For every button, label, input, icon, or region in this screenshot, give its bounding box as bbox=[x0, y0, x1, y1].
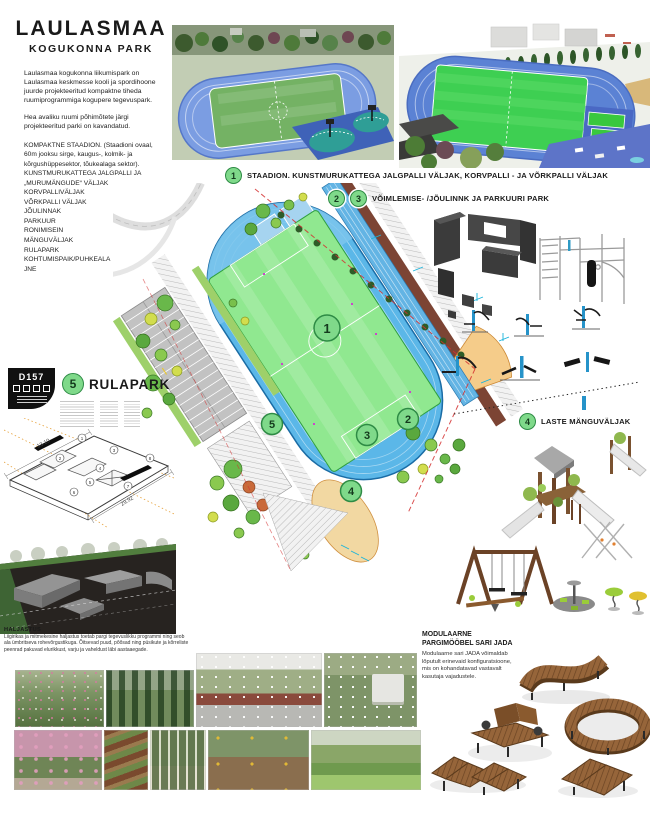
legend-item-2-3: 2 3 VÕIMLEMISE- /JÕULINNK JA PARKUURI PA… bbox=[328, 190, 549, 207]
photo-blossom-path bbox=[14, 730, 102, 790]
photo-terraced-planters bbox=[104, 730, 148, 790]
plan-marker-2-number: 2 bbox=[405, 414, 411, 426]
skatepark-parts-table bbox=[60, 399, 140, 429]
legend-item-1: 1 STAADION. KUNSTMURUKATTEGA JALGPALLI V… bbox=[225, 167, 608, 184]
skatepark-render-graphic bbox=[0, 528, 176, 634]
stadium-render-1-graphic bbox=[172, 25, 394, 160]
legend-4-badge: 4 bbox=[519, 413, 536, 430]
legend-1-badge: 1 bbox=[225, 167, 242, 184]
calisthenics-rig bbox=[540, 234, 624, 304]
plan-marker-3-number: 3 bbox=[364, 430, 370, 442]
furniture-heading-2: PARGIMÖÖBEL SARI JADA bbox=[422, 640, 532, 649]
legend-5-badge: 5 bbox=[62, 373, 84, 395]
drawing-title-block: D157 bbox=[8, 368, 55, 409]
dotted-divider bbox=[454, 382, 640, 414]
furniture-heading-1: MODULAARNE bbox=[422, 631, 532, 640]
landscaping-note: HALJASTUS Liigirikas ja mitmekesine halj… bbox=[4, 627, 190, 653]
page-title: LAULASMAA bbox=[14, 18, 168, 39]
chaise-lounge-single bbox=[558, 759, 638, 798]
double-bench-with-tables bbox=[468, 703, 552, 762]
s-curve-bench bbox=[522, 660, 610, 704]
playground-graphic bbox=[372, 426, 650, 634]
plan-marker-5-number: 5 bbox=[269, 419, 275, 431]
carousel bbox=[553, 581, 595, 613]
dim-long-label: 29.92 bbox=[120, 495, 135, 507]
play-tower bbox=[502, 446, 614, 538]
presentation-board: LAULASMAA KOGUKONNA PARK Laulasmaa koguk… bbox=[0, 0, 650, 815]
parkour-blocks bbox=[434, 212, 536, 319]
skatepark-axon-drawing: 13.10 29.92 1 2 3 4 5 6 7 8 bbox=[4, 418, 174, 538]
legend-1-label: STAADION. KUNSTMURUKATTEGA JALGPALLI VÄL… bbox=[247, 171, 608, 180]
bollard bbox=[582, 396, 586, 410]
spring-riders bbox=[605, 588, 647, 616]
legend-2-3-label: VÕIMLEMISE- /JÕULINNK JA PARKUURI PARK bbox=[372, 194, 549, 203]
photo-tree-allee bbox=[106, 670, 194, 727]
legend-2-badge: 2 bbox=[328, 190, 345, 207]
gym-equipment-graphic bbox=[424, 206, 650, 422]
photo-hammock-playground bbox=[208, 730, 309, 790]
landscaping-note-heading: HALJASTUS bbox=[4, 627, 190, 633]
small-slide-unit bbox=[610, 432, 646, 476]
landscaping-note-body: Liigirikas ja mitmekesine haljastus toet… bbox=[4, 634, 190, 653]
circle-bench bbox=[568, 704, 648, 755]
skatepark-render bbox=[0, 528, 176, 634]
photo-park-bench bbox=[324, 653, 417, 727]
fitness-machines bbox=[442, 306, 610, 410]
playground-renders bbox=[372, 426, 650, 634]
chaise-lounge-pair bbox=[430, 757, 526, 795]
furniture-description: Modulaarne sari JADA võimaldab lõputult … bbox=[422, 651, 516, 681]
photo-garden-lawn bbox=[311, 730, 421, 790]
legend-3-badge: 3 bbox=[350, 190, 367, 207]
gym-equipment-renders bbox=[424, 206, 650, 422]
seesaw bbox=[466, 595, 524, 612]
page-subtitle: KOGUKONNA PARK bbox=[14, 43, 168, 55]
stadium-render-1 bbox=[172, 25, 394, 160]
title-block-microtext bbox=[17, 395, 47, 403]
intro-paragraph-2: Hea avaliku ruumi põhimõtete järgi proje… bbox=[14, 113, 168, 131]
title-block-icons bbox=[8, 385, 55, 392]
legend-5-label: RULAPARK bbox=[89, 377, 170, 392]
plan-marker-1-number: 1 bbox=[323, 321, 330, 336]
legend-4-label: LASTE MÄNGUVÄLJAK bbox=[541, 417, 630, 426]
legend-item-4: 4 LASTE MÄNGUVÄLJAK bbox=[519, 413, 630, 430]
feature-item: KOMPAKTNE STAADION. (Staadioni ovaal, 60… bbox=[24, 141, 166, 170]
photo-street-planting bbox=[196, 653, 322, 727]
stadium-render-2-graphic bbox=[399, 22, 650, 168]
intro-paragraph-1: Laulasmaa kogukonna liikumispark on Laul… bbox=[14, 69, 168, 105]
photo-birch-path bbox=[150, 730, 206, 790]
drawing-code: D157 bbox=[8, 372, 55, 382]
plan-marker-4-number: 4 bbox=[348, 486, 355, 498]
furniture-section-text: MODULAARNE PARGIMÖÖBEL SARI JADA Modulaa… bbox=[422, 631, 532, 681]
photo-flower-meadow bbox=[15, 670, 104, 727]
skatepark-axon-graphic: 13.10 29.92 1 2 3 4 5 6 7 8 bbox=[4, 418, 174, 538]
legend-item-5: 5 RULAPARK bbox=[62, 373, 170, 395]
stadium-render-2 bbox=[399, 22, 650, 168]
